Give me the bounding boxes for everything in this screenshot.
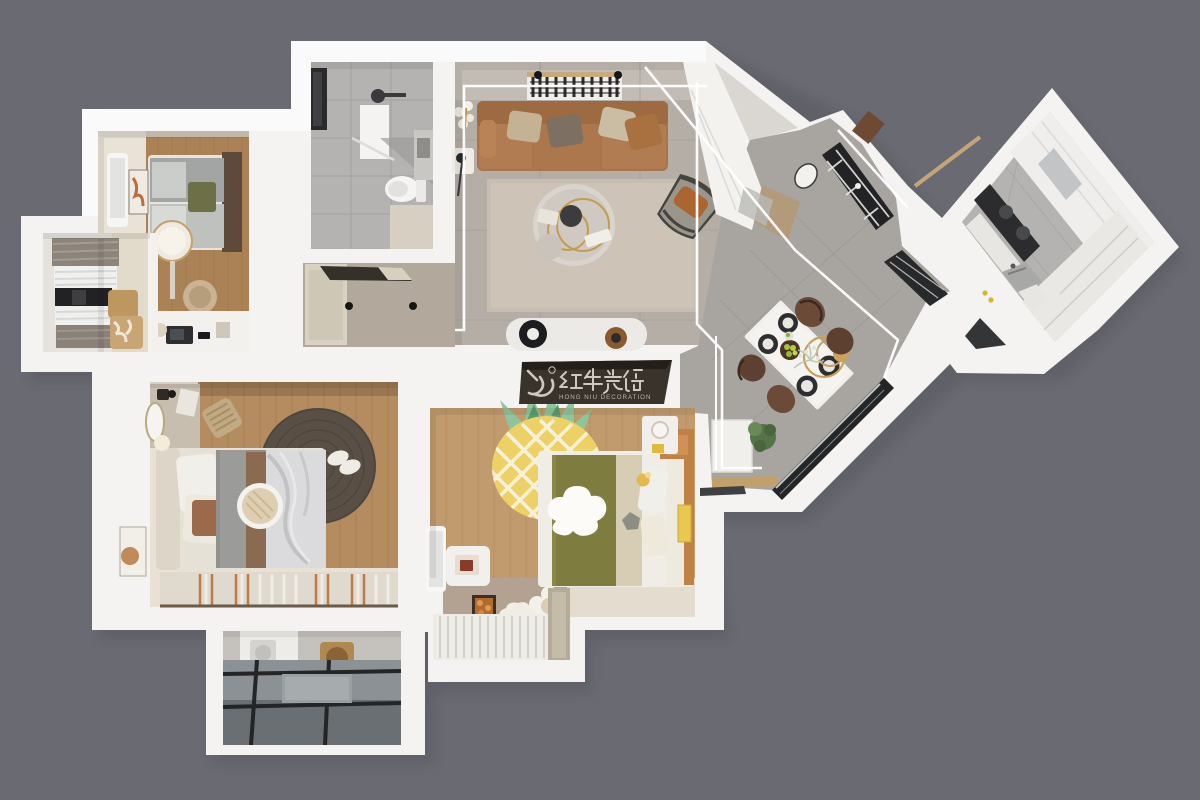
svg-text:HONG NIU DECORATION: HONG NIU DECORATION xyxy=(559,394,651,401)
